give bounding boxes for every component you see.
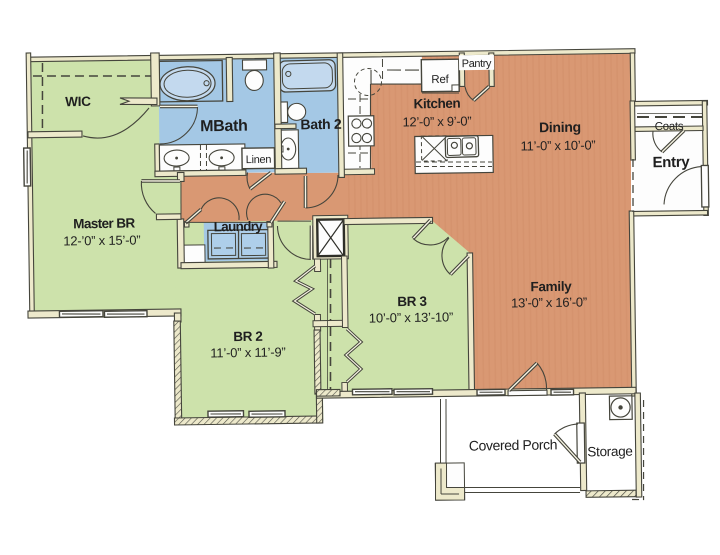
svg-text:BR 2: BR 2 [233, 329, 262, 344]
svg-text:Coats: Coats [655, 121, 684, 133]
svg-text:Master BR: Master BR [73, 216, 135, 232]
svg-text:Linen: Linen [246, 154, 272, 166]
svg-text:Kitchen: Kitchen [414, 96, 461, 112]
svg-text:Bath 2: Bath 2 [300, 116, 342, 133]
svg-text:Ref: Ref [431, 74, 449, 86]
svg-text:BR 3: BR 3 [397, 294, 427, 309]
svg-text:Laundry: Laundry [214, 219, 264, 235]
svg-text:12’-0” x 9’-0”: 12’-0” x 9’-0” [402, 114, 471, 130]
svg-text:WIC: WIC [65, 94, 91, 109]
svg-text:11’-0” x 11’-9”: 11’-0” x 11’-9” [210, 344, 285, 360]
svg-text:MBath: MBath [200, 118, 248, 136]
svg-text:Pantry: Pantry [462, 58, 492, 70]
svg-text:13’-0” x 16’-0”: 13’-0” x 16’-0” [511, 294, 587, 310]
svg-text:10’-0” x 13’-10”: 10’-0” x 13’-10” [369, 309, 453, 325]
svg-text:11’-0” x 10’-0”: 11’-0” x 10’-0” [521, 138, 596, 154]
svg-text:Entry: Entry [652, 154, 690, 172]
svg-text:Dining: Dining [539, 119, 581, 136]
svg-text:12-’0” x 15’-0”: 12-’0” x 15’-0” [63, 232, 140, 248]
svg-text:Storage: Storage [587, 444, 632, 460]
svg-text:Covered Porch: Covered Porch [469, 436, 557, 453]
svg-text:Family: Family [530, 279, 572, 295]
